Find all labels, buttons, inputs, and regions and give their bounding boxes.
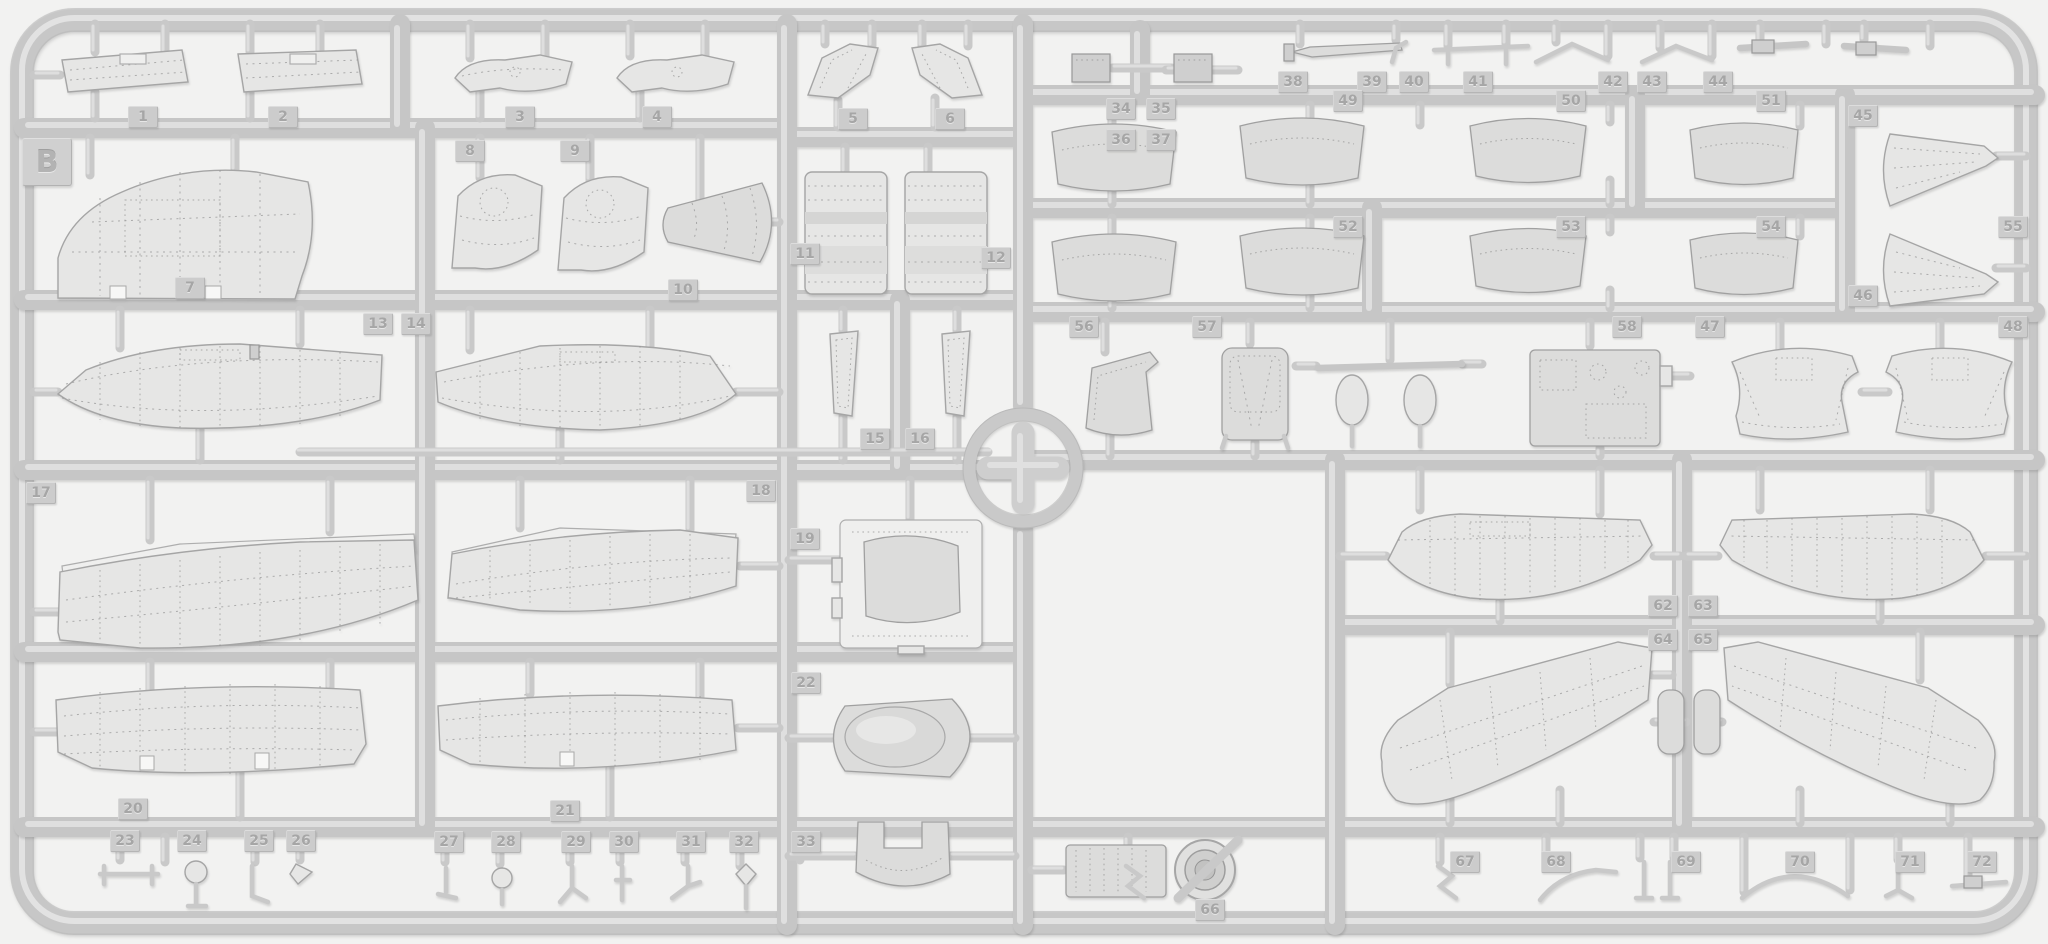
part-number-tag: 52 [1333,216,1363,238]
part-number-tag: 26 [286,830,316,852]
part-number-tag: 38 [1278,71,1308,93]
part-canopy-deck-panel [832,520,982,654]
part-number-tag: 14 [401,313,431,335]
part-cowl-side-b [1886,348,2012,439]
part-cowl-side-a [1732,348,1858,439]
part-number-tag: 53 [1556,216,1586,238]
part-number-tag: 48 [1998,316,2028,338]
part-instrument-panel [1530,350,1672,446]
part-wing-lower-a [56,684,366,774]
part-wing-upper-a [58,534,418,648]
part-tapered-panel-a [1884,134,1999,206]
part-number-tag: 44 [1703,71,1733,93]
part-number-tag: 3 [505,106,535,128]
part-number-tag: 11 [790,243,820,265]
part-number-tag: 18 [746,480,776,502]
part-number-tag: 12 [981,247,1011,269]
part-number-tag: 65 [1688,629,1718,651]
part-number-tag: 1 [128,106,158,128]
part-number-tag: 22 [791,672,821,694]
part-number-tag: 71 [1895,851,1925,873]
part-number-tag: 19 [790,528,820,550]
part-number-tag: 72 [1967,851,1997,873]
part-number-tag: 10 [668,279,698,301]
part-number-tag: 40 [1399,71,1429,93]
part-outer-wing-b [1724,642,1995,804]
part-number-tag: 64 [1648,629,1678,651]
part-wing-upper-b [448,528,738,611]
part-number-tag: 30 [609,831,639,853]
part-number-tag: 17 [26,482,56,504]
part-number-tag: 55 [1998,216,2028,238]
part-number-tag: 7 [175,277,205,299]
part-tapered-panel-b [1884,234,1999,306]
part-number-tag: 62 [1648,595,1678,617]
part-number-tag: 51 [1756,90,1786,112]
part-number-tag: 66 [1195,899,1225,921]
part-number-tag: 68 [1541,851,1571,873]
part-number-tag: 27 [434,831,464,853]
part-number-tag: 63 [1688,595,1718,617]
part-hull-half-a [58,344,382,428]
part-number-tag: 15 [860,428,890,450]
part-number-tag: 58 [1612,316,1642,338]
part-small-rigging-parts [1284,40,1906,64]
part-number-tag: 70 [1785,851,1815,873]
part-stabilizer-half-a [62,50,188,92]
part-number-tag: 13 [363,313,393,335]
part-small-fittings-left [100,861,312,906]
part-strap-b [942,331,970,416]
part-number-tag: 56 [1069,316,1099,338]
part-number-tag: 28 [491,831,521,853]
part-canopy-section-a [808,44,878,98]
part-stabilizer-half-b [238,50,362,92]
part-ribbed-drum-b [905,172,987,294]
part-rail-with-covers [1318,364,1462,446]
sprue-letter: B [36,145,59,180]
part-fairing-panel-b [558,177,648,271]
part-number-tag: 21 [550,800,580,822]
part-floor-ramp [1086,352,1158,435]
part-number-tag: 8 [455,140,485,162]
cross-circle-locator-icon [963,408,1083,528]
part-number-tag: 2 [268,106,298,128]
part-small-fittings-mid [438,864,756,908]
part-number-tag: 24 [177,830,207,852]
part-number-tag: 46 [1848,285,1878,307]
part-engine-assembly [1066,840,1238,900]
part-number-tag: 4 [642,106,672,128]
part-number-tag: 20 [118,798,148,820]
part-canopy-section-b [912,44,982,98]
part-number-tag: 5 [838,108,868,130]
part-number-tag: 69 [1671,851,1701,873]
part-hull-half-b [436,345,736,430]
part-ribbed-drum-a [805,172,887,294]
part-seat [1222,348,1288,448]
part-float-hull-a [1388,514,1652,600]
part-number-tag: 31 [676,831,706,853]
part-number-tag: 54 [1756,216,1786,238]
part-number-tag: 35 [1146,98,1176,120]
part-number-tag: 16 [905,428,935,450]
part-number-tag: 6 [935,108,965,130]
part-number-tag: 45 [1848,105,1878,127]
part-outer-wing-a [1381,642,1652,804]
part-cowl-cone [663,183,772,262]
part-fairing-panel-a [452,175,542,269]
part-number-tag: 33 [791,831,821,853]
part-number-tag: 29 [561,831,591,853]
part-number-tag: 9 [560,140,590,162]
part-number-tag: 34 [1106,98,1136,120]
part-bracket-b [617,55,734,92]
part-number-tag: 57 [1192,316,1222,338]
part-wing-lower-b [438,692,736,768]
sprue-photo: B 12345678910111213141516171819202122232… [0,0,2048,944]
part-number-tag: 47 [1695,316,1725,338]
part-number-tag: 36 [1106,129,1136,151]
part-number-tag: 67 [1450,851,1480,873]
sprue-letter-tab: B [22,138,72,186]
part-number-tag: 25 [244,830,274,852]
part-number-tag: 37 [1146,129,1176,151]
part-cowl-fairing [834,699,971,777]
part-number-tag: 32 [729,831,759,853]
part-number-tag: 49 [1333,90,1363,112]
part-number-tag: 23 [110,830,140,852]
part-number-tag: 43 [1637,71,1667,93]
sprue-illustration [0,0,2048,944]
part-float-hull-b [1720,514,1984,600]
part-number-tag: 42 [1598,71,1628,93]
part-strap-a [830,331,858,416]
part-number-tag: 41 [1463,71,1493,93]
part-number-tag: 50 [1556,90,1586,112]
